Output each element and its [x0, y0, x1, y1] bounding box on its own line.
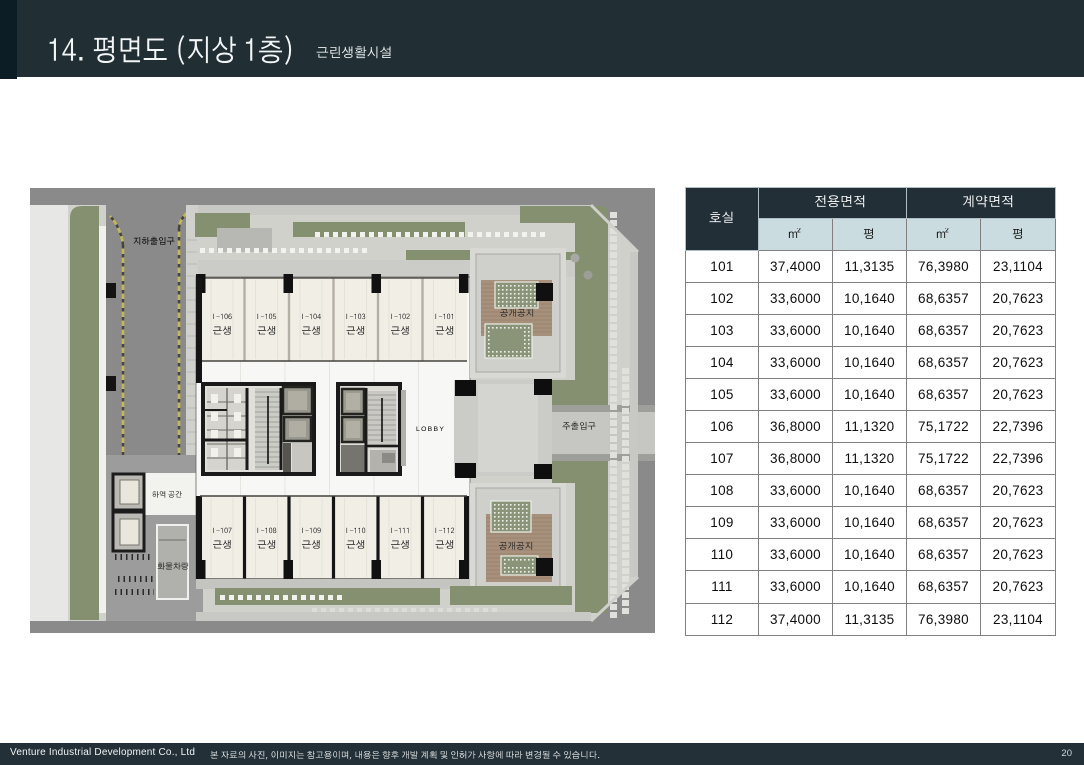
svg-text:LOBBY: LOBBY [416, 426, 445, 433]
